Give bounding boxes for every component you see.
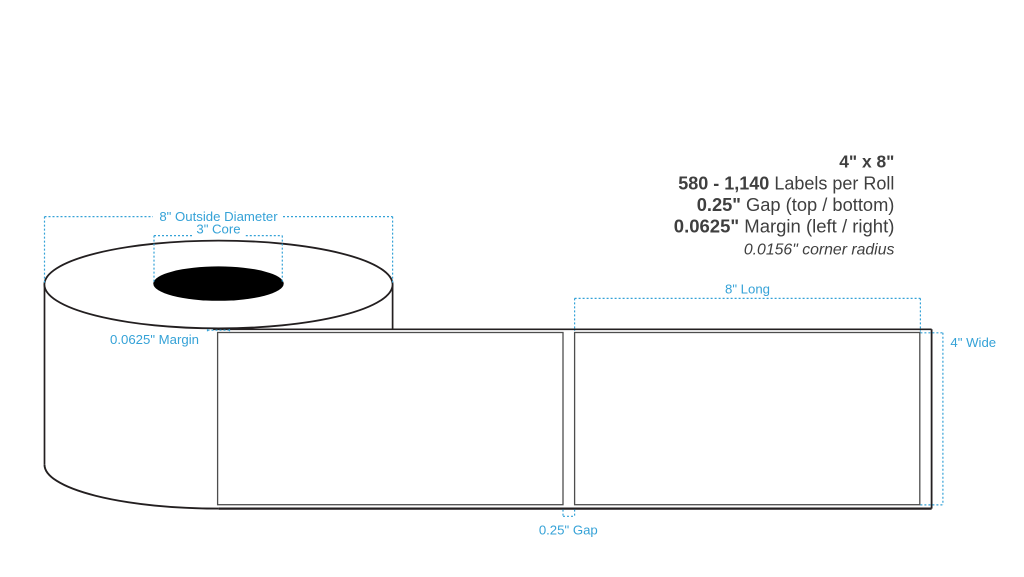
svg-text:0.0625" Margin: 0.0625" Margin [110,332,199,347]
svg-text:0.25" Gap (top / bottom): 0.25" Gap (top / bottom) [697,194,895,215]
svg-text:0.25" Gap: 0.25" Gap [539,523,598,538]
svg-text:4" x 8": 4" x 8" [839,152,894,172]
svg-text:0.0625" Margin (left / right): 0.0625" Margin (left / right) [674,216,895,237]
svg-text:580 - 1,140 Labels per Roll: 580 - 1,140 Labels per Roll [678,173,894,193]
svg-text:4" Wide: 4" Wide [950,335,996,350]
svg-text:3" Core: 3" Core [196,222,240,237]
svg-text:0.0156" corner radius: 0.0156" corner radius [744,241,895,258]
svg-text:8" Long: 8" Long [725,281,770,296]
